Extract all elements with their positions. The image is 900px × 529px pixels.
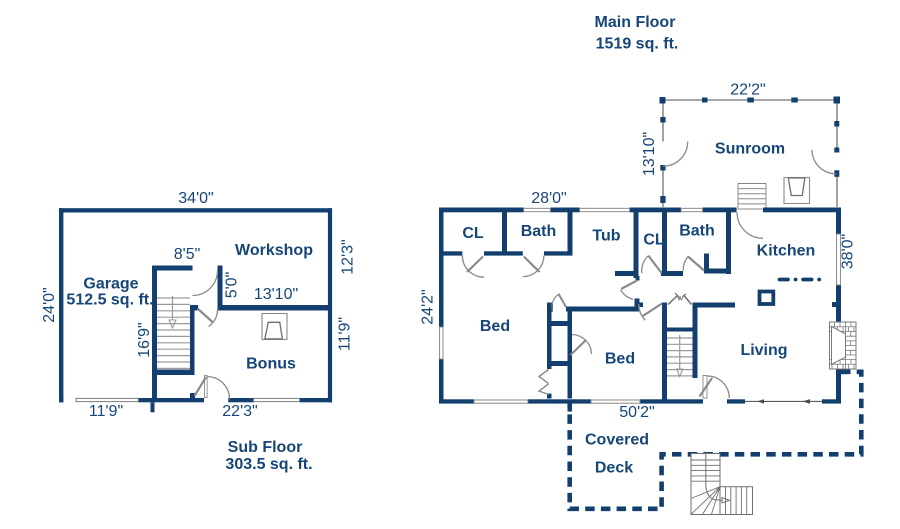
svg-text:12'3": 12'3"	[340, 239, 357, 274]
svg-text:Bath: Bath	[521, 223, 557, 240]
svg-text:Kitchen: Kitchen	[757, 243, 816, 260]
svg-text:22'2": 22'2"	[730, 82, 765, 99]
svg-text:CL: CL	[643, 232, 665, 249]
svg-text:28'0": 28'0"	[531, 190, 566, 207]
svg-text:Deck: Deck	[595, 460, 633, 477]
svg-text:Bed: Bed	[605, 351, 635, 368]
svg-text:24'0": 24'0"	[41, 287, 58, 322]
svg-text:16'9": 16'9"	[136, 322, 153, 357]
svg-text:1519 sq. ft.: 1519 sq. ft.	[596, 36, 679, 53]
svg-text:34'0": 34'0"	[178, 190, 213, 207]
svg-text:5'0": 5'0"	[224, 272, 241, 299]
svg-text:13'10": 13'10"	[641, 132, 658, 176]
svg-text:Bonus: Bonus	[246, 356, 296, 373]
svg-text:CL: CL	[462, 225, 484, 242]
svg-text:8'5": 8'5"	[174, 246, 201, 263]
svg-text:512.5 sq. ft.: 512.5 sq. ft.	[66, 292, 153, 309]
svg-text:Sunroom: Sunroom	[715, 141, 785, 158]
svg-text:Living: Living	[740, 342, 787, 359]
svg-text:Bed: Bed	[480, 318, 510, 335]
svg-text:11'9": 11'9"	[337, 317, 354, 351]
svg-text:38'0": 38'0"	[840, 234, 857, 269]
svg-text:13'10": 13'10"	[254, 286, 298, 303]
svg-text:303.5 sq. ft.: 303.5 sq. ft.	[225, 456, 312, 473]
svg-text:Tub: Tub	[592, 228, 620, 245]
svg-text:Workshop: Workshop	[235, 242, 313, 259]
svg-text:Sub Floor: Sub Floor	[228, 439, 303, 456]
svg-text:Covered: Covered	[585, 432, 649, 449]
svg-text:Bath: Bath	[679, 223, 715, 240]
svg-text:Main Floor: Main Floor	[595, 14, 676, 31]
svg-text:11'9": 11'9"	[89, 403, 123, 420]
svg-text:50'2": 50'2"	[619, 404, 654, 421]
svg-text:Garage: Garage	[83, 276, 138, 293]
svg-text:24'2": 24'2"	[420, 289, 437, 324]
svg-text:22'3": 22'3"	[222, 403, 257, 420]
